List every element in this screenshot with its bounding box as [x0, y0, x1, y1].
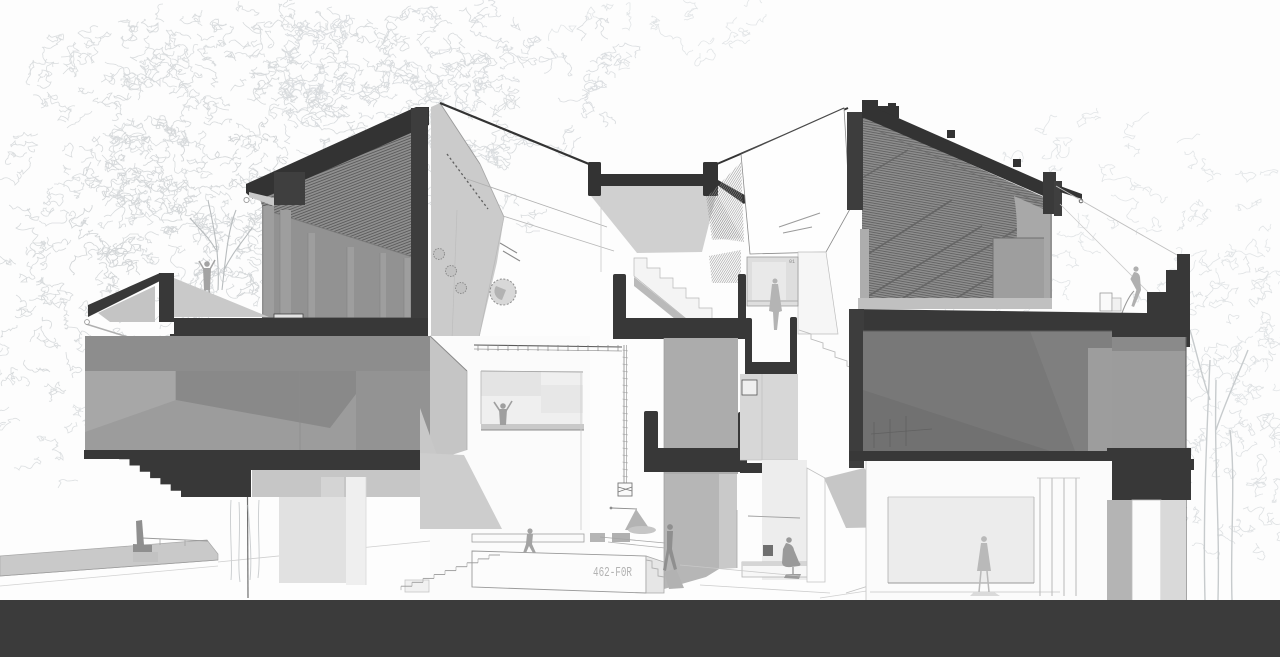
svg-text:462-F0R: 462-F0R	[593, 565, 632, 581]
svg-text:01: 01	[789, 259, 795, 265]
